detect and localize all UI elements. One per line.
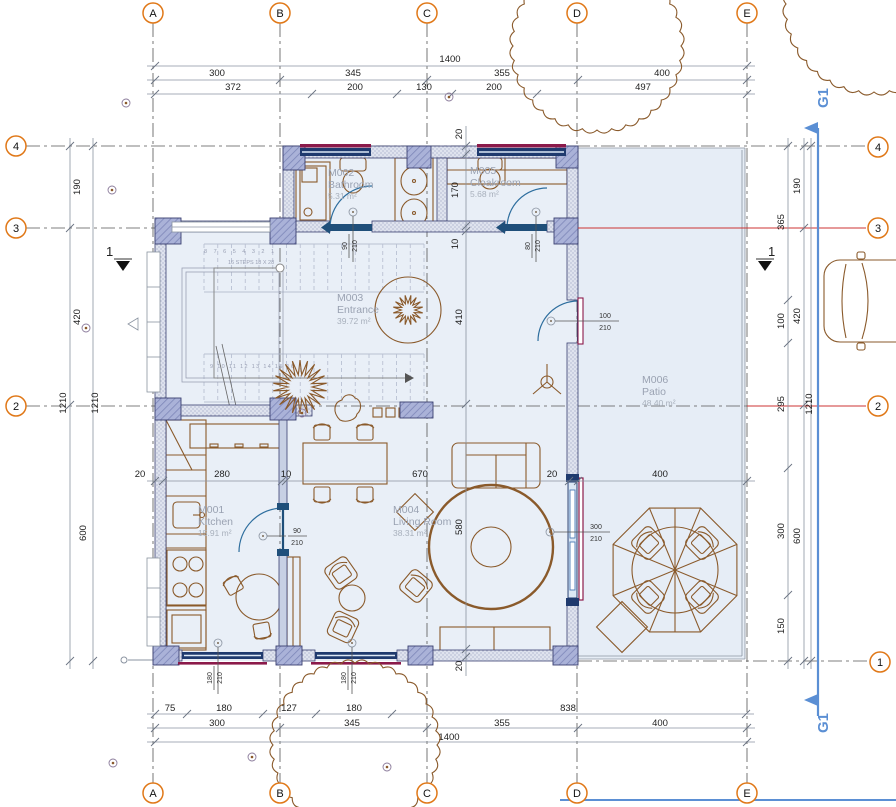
stair-lower-numbers: 9 10 11 12 13 14 15 16 <box>210 364 294 370</box>
bubble-right-4: 4 <box>868 137 888 157</box>
svg-text:Cloakroom: Cloakroom <box>470 177 521 189</box>
dim-inner-10: 10 <box>281 469 292 480</box>
section-marker-left: 1 <box>106 244 132 271</box>
car-top-view <box>824 252 896 350</box>
svg-text:80: 80 <box>525 242 532 250</box>
dim-left-190: 190 <box>72 179 83 195</box>
svg-text:5.31 m²: 5.31 m² <box>328 191 357 201</box>
svg-text:M004: M004 <box>393 504 419 516</box>
window-cloak-accent <box>477 144 566 148</box>
svg-text:M005: M005 <box>470 165 496 177</box>
svg-text:1: 1 <box>106 244 113 259</box>
svg-text:3: 3 <box>13 223 19 235</box>
dim-right-295: 295 <box>776 396 787 412</box>
stair-note: 16 STEPS 18 X 28 <box>228 260 274 266</box>
dim-top-400: 400 <box>654 68 670 79</box>
dim-innerv-170: 170 <box>450 182 461 198</box>
svg-text:3: 3 <box>875 223 881 235</box>
dim-bot-355: 355 <box>494 718 510 729</box>
wall-east-b <box>567 343 578 478</box>
floor-plan-drawing: 8 7 6 5 4 3 2 1 9 10 11 12 13 14 15 16 1… <box>0 0 896 807</box>
svg-text:90: 90 <box>342 242 349 250</box>
svg-text:Patio: Patio <box>642 386 666 398</box>
floor-plan-canvas: 8 7 6 5 4 3 2 1 9 10 11 12 13 14 15 16 1… <box>0 0 896 807</box>
dim-inner-670: 670 <box>412 469 428 480</box>
svg-text:39.72 m²: 39.72 m² <box>337 316 371 326</box>
g1-label-bottom: G1 <box>815 713 832 733</box>
svg-text:210: 210 <box>291 540 303 547</box>
svg-text:210: 210 <box>535 240 542 252</box>
stair-upper-numbers: 8 7 6 5 4 3 2 1 <box>204 249 274 255</box>
bubble-left-4: 4 <box>6 136 26 156</box>
svg-text:Living Room: Living Room <box>393 516 452 528</box>
dim-top-497: 497 <box>635 82 651 93</box>
bubble-left-3: 3 <box>6 218 26 238</box>
dim-bot-total: 1400 <box>438 732 459 743</box>
dim-bot-400: 400 <box>652 718 668 729</box>
dim-top-300: 300 <box>209 68 225 79</box>
bubble-bottom-A: A <box>143 783 163 803</box>
svg-text:A: A <box>149 8 157 20</box>
svg-text:M002: M002 <box>328 167 354 179</box>
svg-text:100: 100 <box>599 313 611 320</box>
svg-text:210: 210 <box>590 536 602 543</box>
svg-text:1: 1 <box>877 657 883 669</box>
dim-inner-280: 280 <box>214 469 230 480</box>
window-west-upper <box>128 252 160 392</box>
dim-bot-180b: 180 <box>346 703 362 714</box>
svg-text:B: B <box>276 8 283 20</box>
section-triangle-left <box>116 261 130 271</box>
svg-text:D: D <box>573 788 581 800</box>
dim-bot-345: 345 <box>344 718 360 729</box>
bubble-bottom-B: B <box>270 783 290 803</box>
dim-innerv-410: 410 <box>454 309 465 325</box>
bubble-top-C: C <box>417 3 437 23</box>
dim-bot-300: 300 <box>209 718 225 729</box>
window-bath-accent <box>300 144 371 148</box>
dim-right-1210: 1210 <box>804 393 815 414</box>
bubble-top-B: B <box>270 3 290 23</box>
dim-left-1210b: 1210 <box>90 392 101 413</box>
dim-left-600: 600 <box>78 525 89 541</box>
dim-top-355: 355 <box>494 68 510 79</box>
svg-text:210: 210 <box>351 672 358 684</box>
dim-innerv-20b: 20 <box>454 661 465 672</box>
bubble-top-A: A <box>143 3 163 23</box>
dim-top-200b: 200 <box>486 82 502 93</box>
svg-text:E: E <box>743 788 750 800</box>
patio-glazed-door <box>566 474 583 606</box>
dim-inner-20b: 20 <box>547 469 558 480</box>
svg-text:M006: M006 <box>642 374 668 386</box>
dim-top-130: 130 <box>416 82 432 93</box>
dim-top-200a: 200 <box>347 82 363 93</box>
tree-outline <box>783 0 896 95</box>
dim-right-600: 600 <box>792 528 803 544</box>
wall-kitchen-b <box>279 552 287 650</box>
svg-text:2: 2 <box>13 401 19 413</box>
svg-text:180: 180 <box>207 672 214 684</box>
wall-bath-cloak-partition <box>437 158 447 221</box>
dim-inner-20a: 20 <box>135 469 146 480</box>
dim-innerv-10: 10 <box>450 239 461 250</box>
dim-left-1210a: 1210 <box>58 392 69 413</box>
dim-right-150: 150 <box>776 618 787 634</box>
dim-left-420: 420 <box>72 309 83 325</box>
dim-bot-180a: 180 <box>216 703 232 714</box>
grid-line-1-left-stub <box>121 657 156 663</box>
dim-innerv-20a: 20 <box>454 129 465 140</box>
svg-text:4: 4 <box>13 141 19 153</box>
tree-outline <box>510 0 684 133</box>
g1-arrow-bottom <box>804 694 818 706</box>
svg-text:E: E <box>743 8 750 20</box>
bubble-right-2: 2 <box>868 396 888 416</box>
bubble-right-1: 1 <box>870 652 890 672</box>
wall-row3-b <box>372 221 505 232</box>
svg-text:C: C <box>423 8 431 20</box>
g1-label-top: G1 <box>815 88 832 108</box>
svg-text:15.91 m²: 15.91 m² <box>198 528 232 538</box>
svg-text:Bathroom: Bathroom <box>328 179 374 191</box>
svg-text:D: D <box>573 8 581 20</box>
window-south-1-accent <box>178 662 267 665</box>
dim-top-372: 372 <box>225 82 241 93</box>
dim-inner-400: 400 <box>652 469 668 480</box>
bubble-bottom-D: D <box>567 783 587 803</box>
g1-arrow-top <box>804 122 818 134</box>
bubble-bottom-C: C <box>417 783 437 803</box>
dim-right-365: 365 <box>776 214 787 230</box>
svg-text:Kitchen: Kitchen <box>198 516 233 528</box>
bubble-top-E: E <box>737 3 757 23</box>
svg-text:90: 90 <box>293 528 301 535</box>
svg-text:2: 2 <box>875 401 881 413</box>
svg-text:38.31 m²: 38.31 m² <box>393 528 427 538</box>
svg-text:C: C <box>423 788 431 800</box>
svg-text:Entrance: Entrance <box>337 304 379 316</box>
svg-text:5.68 m²: 5.68 m² <box>470 189 499 199</box>
window-west-lower <box>147 558 160 646</box>
dim-right-190: 190 <box>792 178 803 194</box>
dim-top-345: 345 <box>345 68 361 79</box>
svg-text:1: 1 <box>768 244 775 259</box>
dim-right-100: 100 <box>776 313 787 329</box>
section-triangle-right <box>758 261 772 271</box>
svg-text:4: 4 <box>875 142 881 154</box>
wall-kitchen-a <box>279 416 287 506</box>
svg-text:A: A <box>149 788 157 800</box>
svg-text:210: 210 <box>352 240 359 252</box>
dim-right-420: 420 <box>792 308 803 324</box>
svg-text:210: 210 <box>599 325 611 332</box>
bubble-left-2: 2 <box>6 396 26 416</box>
dim-bot-838: 838 <box>560 703 576 714</box>
dim-bot-75: 75 <box>165 703 176 714</box>
svg-text:210: 210 <box>217 672 224 684</box>
svg-text:180: 180 <box>341 672 348 684</box>
window-north-stairs <box>172 222 270 232</box>
bubble-top-D: D <box>567 3 587 23</box>
svg-text:M003: M003 <box>337 292 363 304</box>
dim-innerv-580: 580 <box>454 519 465 535</box>
bubble-right-3: 3 <box>868 218 888 238</box>
section-marker-right: 1 <box>756 244 775 271</box>
dim-right-300: 300 <box>776 523 787 539</box>
dim-top-total: 1400 <box>439 54 460 65</box>
svg-text:300: 300 <box>590 524 602 531</box>
svg-text:48.40 m²: 48.40 m² <box>642 398 676 408</box>
svg-text:M001: M001 <box>198 504 224 516</box>
svg-text:B: B <box>276 788 283 800</box>
bubble-bottom-E: E <box>737 783 757 803</box>
